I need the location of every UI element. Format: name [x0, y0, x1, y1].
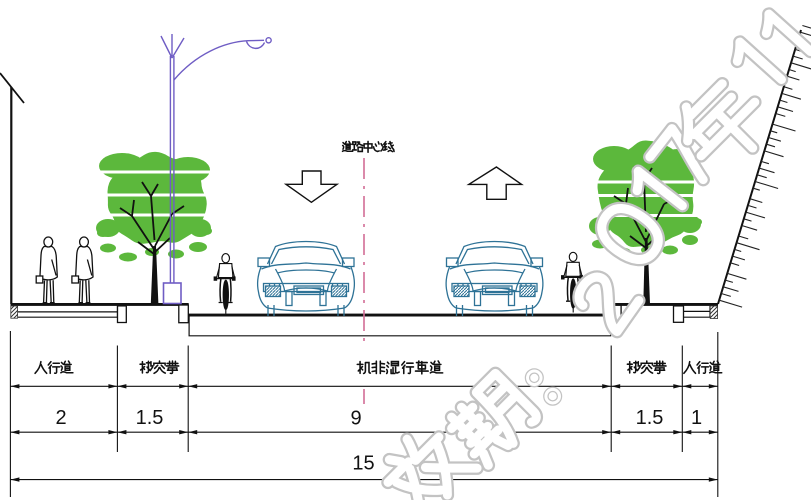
svg-text:1.5: 1.5 [636, 407, 664, 429]
svg-text:9: 9 [350, 408, 361, 430]
svg-text:2: 2 [55, 407, 66, 429]
svg-text:15: 15 [352, 453, 374, 475]
svg-text:1: 1 [691, 407, 702, 429]
svg-text:1.5: 1.5 [136, 407, 164, 429]
